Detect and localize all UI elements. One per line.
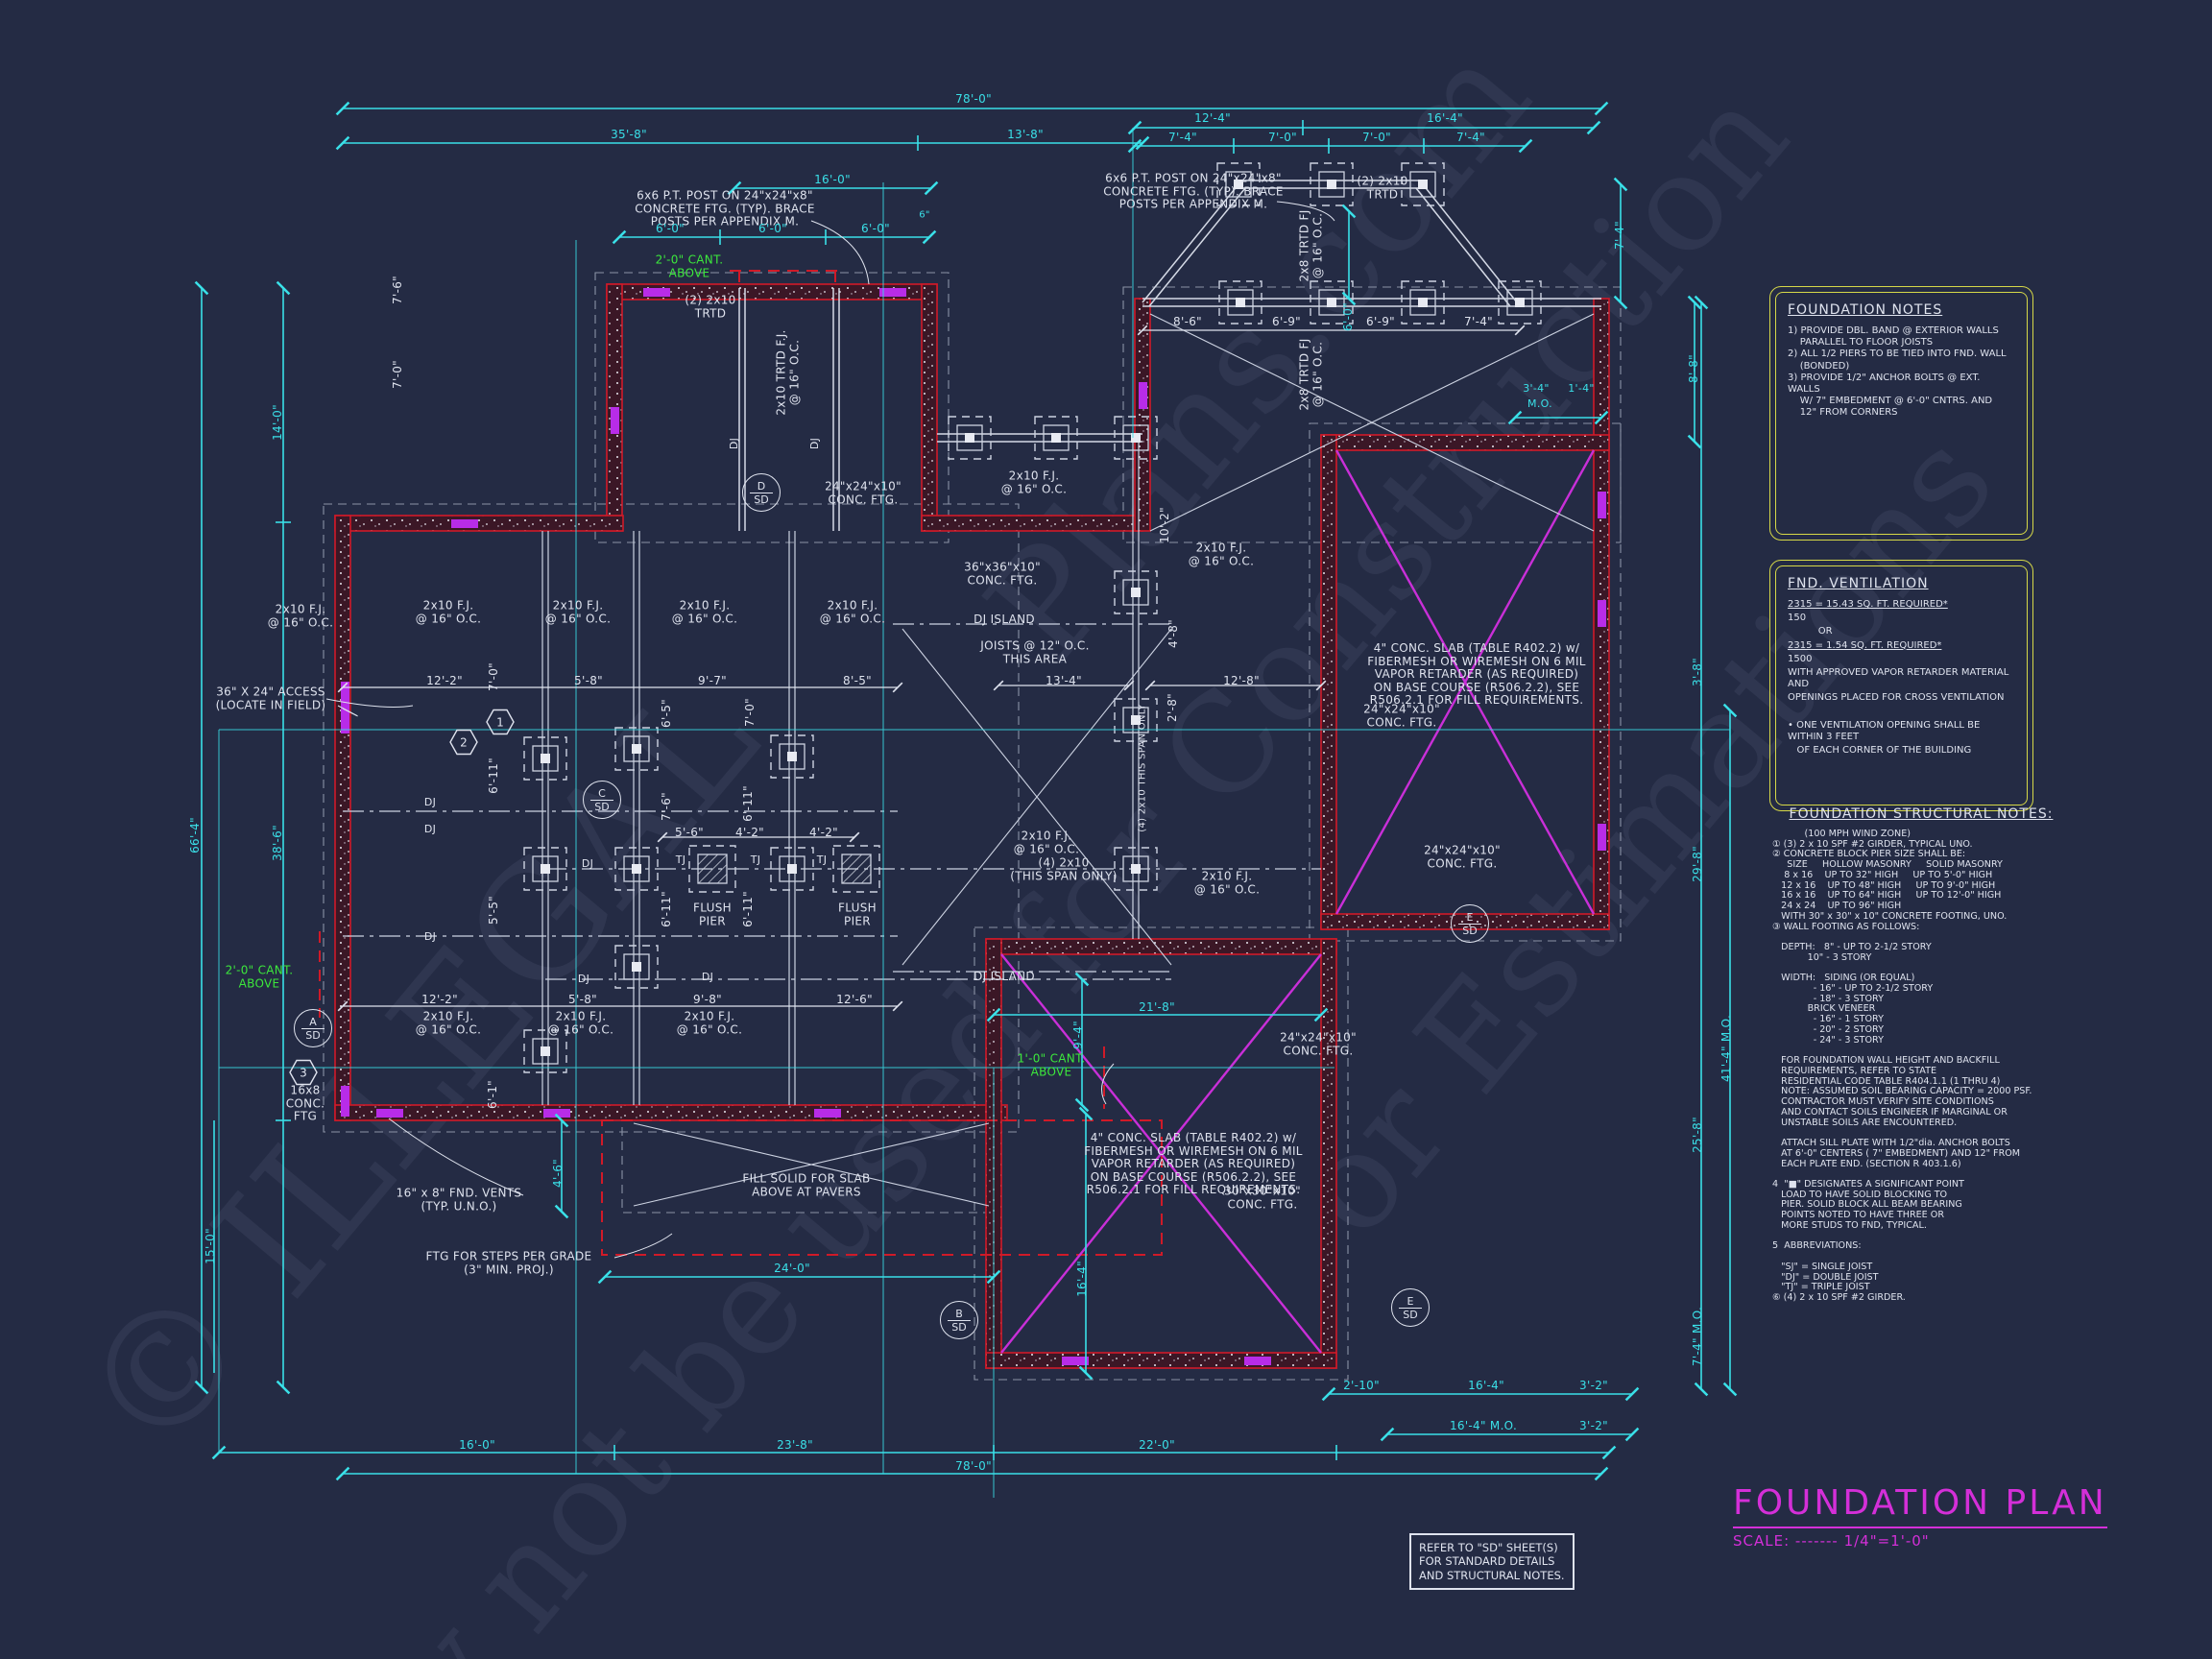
plan-label: 7'-0" [1362,132,1391,145]
plan-label: DJ [729,438,740,449]
plan-label: 13'-8" [1007,129,1044,142]
plan-label: 3'-4" [1523,383,1550,395]
plan-label: 25'-8" [1692,1117,1705,1153]
plan-label: DJ [582,858,593,870]
plan-label: 3'-8" [1692,658,1705,686]
plan-label: 5'-8" [574,675,603,688]
plan-label: DJ [424,931,436,943]
plan-label: FLUSH PIER [838,902,877,927]
section-marker: CSD [583,781,621,819]
title-block: FOUNDATION PLAN SCALE: ------- 1/4"=1'-0… [1733,1483,2107,1550]
plan-label: (2) 2x10 TRTD [1357,175,1407,201]
plan-label: 2x10 F.J. @ 16" O.C. [820,599,885,625]
plan-label: 41'-4" M.O. [1720,1015,1734,1082]
plan-label: 78'-0" [955,93,992,107]
foundation-notes-items: 1) PROVIDE DBL. BAND @ EXTERIOR WALLS PA… [1788,325,2015,420]
sheet-title: FOUNDATION PLAN [1733,1483,2107,1528]
plan-label: 6'-5" [661,699,674,728]
fnd-ventilation-title: FND. VENTILATION [1788,576,2015,591]
fnd-ventilation-line: OPENINGS PLACED FOR CROSS VENTILATION [1788,692,2015,704]
plan-label: 8'-6" [1173,316,1202,329]
fnd-ventilation-line: OR [1788,626,2015,637]
plan-label: DJ ISLAND [974,971,1035,984]
plan-label: 7'-4" [1614,221,1627,250]
plan-label: 22'-0" [1139,1439,1175,1453]
fnd-ventilation-line [1788,707,2015,718]
section-marker: DSD [742,473,781,512]
plan-label: TJ [817,854,828,866]
plan-label: 4'-6" [552,1159,565,1188]
plan-label: 7'-0" [744,698,757,727]
plan-label: 4'-2" [735,827,764,840]
plan-label: 16x8 CONC. FTG [286,1085,325,1124]
plan-label: 8'-5" [843,675,872,688]
plan-label: 2x10 F.J. @ 16" O.C. [545,599,611,625]
plan-label: 7'-6" [661,792,674,821]
plan-label: 6x6 P.T. POST ON 24"x24"x8" CONCRETE FTG… [1103,173,1284,212]
fnd-ventilation-line: OF EACH CORNER OF THE BUILDING [1788,745,2015,757]
plan-label: 6'-0" [1342,302,1356,331]
section-marker: BSD [940,1301,978,1339]
foundation-plan-sheet: Plans.com© ILLEGALMay not be used for Co… [0,0,2212,1659]
plan-label: 15'-0" [204,1228,218,1264]
plan-label: DJ ISLAND [974,613,1035,627]
plan-label: (2) 2x10 TRTD [685,294,735,320]
fnd-ventilation-box: FND. VENTILATION 2315 = 15.43 SQ. FT. RE… [1769,560,2033,811]
plan-label: 38'-6" [272,825,285,861]
plan-label: 78'-0" [955,1460,992,1474]
structural-notes-body: (100 MPH WIND ZONE) ① (3) 2 x 10 SPF #2 … [1772,829,2070,1304]
plan-label: 16'-4" [1076,1261,1090,1297]
plan-label: 14'-0" [272,404,285,441]
section-marker: ESD [1391,1288,1430,1327]
plan-label: 23'-8" [777,1439,813,1453]
plan-label: 2'-0" CANT. ABOVE [656,253,724,279]
keynote-hex-marker: 2 [449,730,478,756]
plan-label: 13'-4" [1046,675,1082,688]
plan-label: 5'-8" [568,994,597,1007]
plan-label: 1'-4" [1568,383,1595,395]
plan-label: 24"x24"x10" CONC. FTG. [1424,844,1501,870]
plan-label: 2'-8" [1166,693,1180,722]
plan-label: 12'-2" [426,675,463,688]
plan-label: 12'-6" [836,994,873,1007]
plan-label: 2x10 F.J. @ 16" O.C. [548,1010,613,1036]
plan-label: 4'-8" [1167,619,1181,648]
plan-label: 6'-11" [488,757,501,794]
fnd-ventilation-lines: 2315 = 15.43 SQ. FT. REQUIRED*150 OR2315… [1788,599,2015,757]
plan-label: FTG FOR STEPS PER GRADE (3" MIN. PROJ.) [426,1250,592,1276]
plan-label: 2x8 TRTD FJ @ 16" O.C. [1298,338,1324,410]
plan-label: 24"x24"x10" CONC. FTG. [825,480,902,506]
plan-label: 2x10 F.J. @ 16" O.C. [1014,829,1079,855]
plan-label: DJ [702,972,713,983]
plan-label: 7'-0" [1268,132,1297,145]
plan-label: 2x10 F.J. @ 16" O.C. [1189,541,1254,567]
plan-label: 2x8 TRTD FJ @ 16" O.C. [1298,209,1324,281]
plan-label: 7'-4" [1464,316,1493,329]
plan-label: 36"x36"x10" CONC. FTG. [964,561,1041,587]
plan-label: 6'-11" [661,891,674,927]
plan-label: 9'-4" [1072,1021,1086,1049]
plan-label: 16'-4" [1468,1380,1504,1393]
plan-label: 30"x30"x10" CONC. FTG. [1224,1185,1301,1211]
plan-label: DJ [578,974,589,985]
plan-label: 12'-4" [1194,112,1231,126]
plan-label: 4" CONC. SLAB (TABLE R402.2) w/ FIBERMES… [1367,642,1586,708]
fnd-ventilation-line: 2315 = 1.54 SQ. FT. REQUIRED* [1788,640,2015,652]
plan-label: (4) 2x10 (THIS SPAN ONLY) [1010,856,1117,882]
plan-label: 36" X 24" ACCESS (LOCATE IN FIELD) [216,685,326,711]
plan-label: 2x10 F.J. @ 16" O.C. [1194,870,1260,896]
plan-label: 6'-0" [656,223,685,236]
foundation-notes-box: FOUNDATION NOTES 1) PROVIDE DBL. BAND @ … [1769,286,2033,541]
plan-label: 7'-0" [488,662,501,691]
plan-label: 16'-0" [814,174,851,187]
plan-label: FLUSH PIER [693,902,732,927]
plan-label: 24'-0" [774,1262,810,1276]
plan-label: 66'-4" [189,817,203,854]
plan-label: 24"x24"x10" CONC. FTG. [1363,703,1440,729]
plan-label: DJ [424,824,436,835]
plan-label: 3'-2" [1579,1380,1608,1393]
plan-label: TJ [676,854,686,866]
plan-label: FILL SOLID FOR SLAB ABOVE AT PAVERS [742,1172,870,1198]
plan-label: 2'-0" CANT. ABOVE [226,964,294,990]
foundation-notes-title: FOUNDATION NOTES [1788,302,2015,318]
plan-label: 6" [919,209,930,220]
plan-label: JOISTS @ 12" O.C. THIS AREA [980,639,1089,665]
plan-label: TJ [751,854,761,866]
plan-label: 35'-8" [611,129,647,142]
plan-label: 16" x 8" FND. VENTS (TYP. U.N.O.) [397,1187,522,1213]
plan-label: (4) 2x10 THIS SPAN ONLY [1137,704,1147,831]
plan-label: 1'-0" CANT. ABOVE [1018,1052,1086,1078]
plan-label: 12'-8" [1223,675,1260,688]
structural-notes-title: FOUNDATION STRUCTURAL NOTES: [1772,806,2070,822]
plan-label: 6'-11" [742,891,756,927]
fnd-ventilation-line: 150 [1788,613,2015,624]
structural-notes: FOUNDATION STRUCTURAL NOTES: (100 MPH WI… [1772,806,2070,1304]
plan-label: 2x10 F.J. @ 16" O.C. [1001,469,1067,495]
plan-label: 6'-11" [742,785,756,822]
plan-label: 3'-2" [1579,1420,1608,1433]
plan-label: DJ [809,438,821,449]
plan-label: 6'-9" [1272,316,1301,329]
plan-label: 7'-6" [392,276,405,304]
plan-label: 2x10 TRTD F.J. @ 16" O.C. [775,329,801,415]
plan-label: 8'-8" [1688,354,1701,383]
plan-label: 2x10 F.J. @ 16" O.C. [672,599,737,625]
plan-label: 5'-5" [488,896,501,925]
plan-label: 2x10 F.J. @ 16" O.C. [268,603,333,629]
plan-label: 6'-9" [1366,316,1395,329]
plan-label: 7'-4" [1168,132,1197,145]
plan-label: 2x10 F.J. @ 16" O.C. [677,1010,742,1036]
plan-label: 5'-6" [675,827,704,840]
plan-label: 2x10 F.J. @ 16" O.C. [416,1010,481,1036]
section-marker: ASD [294,1009,332,1047]
plan-label: 16'-0" [459,1439,495,1453]
fnd-ventilation-line: 1500 [1788,654,2015,665]
plan-label: 21'-8" [1139,1001,1175,1015]
fnd-ventilation-line: WITH APPROVED VAPOR RETARDER MATERIAL AN… [1788,667,2015,690]
plan-label: 9'-8" [693,994,722,1007]
plan-label: M.O. [1527,398,1552,410]
plan-label: 29'-8" [1692,846,1705,882]
plan-label: 7'-4" M.O. [1692,1307,1705,1366]
plan-label: 2x10 F.J. @ 16" O.C. [416,599,481,625]
plan-label: 6'-0" [758,223,787,236]
plan-label: 12'-2" [421,994,458,1007]
fnd-ventilation-line: 2315 = 15.43 SQ. FT. REQUIRED* [1788,599,2015,611]
sheet-scale: SCALE: ------- 1/4"=1'-0" [1733,1532,2107,1550]
plan-label: 16'-4" [1427,112,1463,126]
plan-label: 10'-2" [1159,507,1172,543]
keynote-hex-marker: 3 [289,1060,318,1086]
plan-label: 6'-1" [487,1080,500,1109]
keynote-hex-marker: 1 [486,709,515,735]
plan-label: 7'-4" [1456,132,1485,145]
plan-label: 6'-0" [861,223,890,236]
plan-label: 2'-10" [1343,1380,1380,1393]
refer-note-box: REFER TO "SD" SHEET(S) FOR STANDARD DETA… [1409,1533,1575,1590]
section-marker: ESD [1451,904,1489,943]
plan-label: 16'-4" M.O. [1450,1420,1517,1433]
plan-label: 7'-0" [392,360,405,389]
fnd-ventilation-line: • ONE VENTILATION OPENING SHALL BE WITHI… [1788,720,2015,743]
plan-label: 24"x24"x10" CONC. FTG. [1280,1031,1357,1057]
plan-label: 4'-2" [809,827,838,840]
plan-label: DJ [424,797,436,808]
plan-label: 9'-7" [698,675,727,688]
